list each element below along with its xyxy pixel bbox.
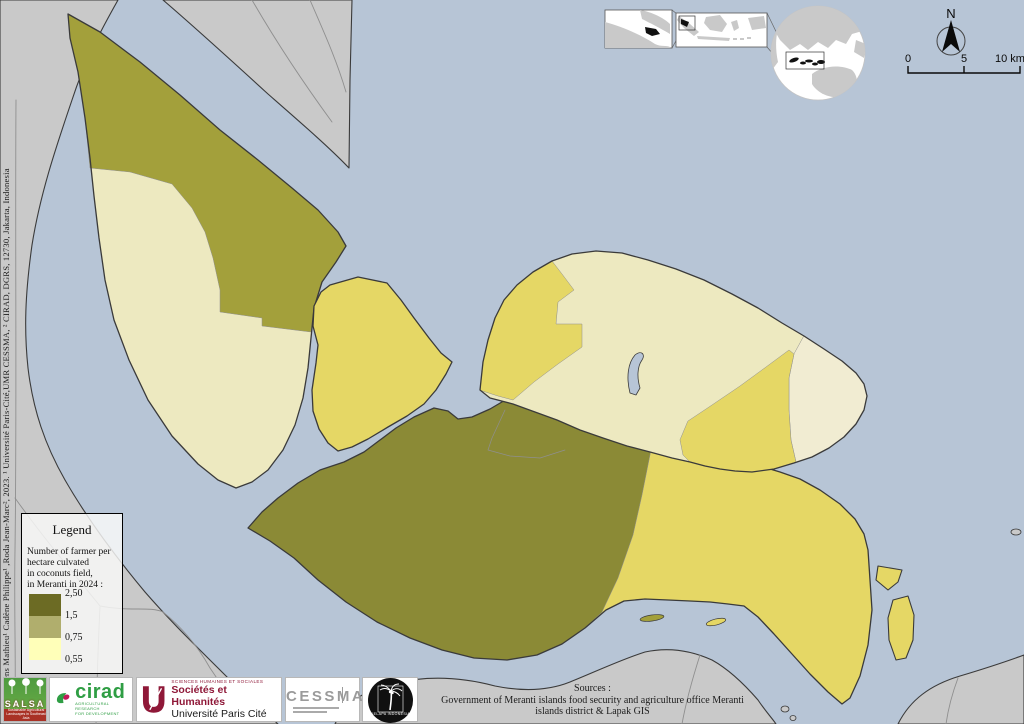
upc-monogram-icon — [141, 685, 166, 715]
kelapa-name: KELAPA INDONESIA — [368, 712, 413, 716]
upc-line2: Sociétés et Humanités — [171, 684, 281, 708]
cirad-seed-icon — [55, 691, 71, 708]
choropleth-map: N 0 5 10 km — [0, 0, 1024, 724]
legend-value-1: 2,50 — [65, 588, 83, 599]
inset-indonesia — [676, 13, 767, 47]
sources-body: Government of Meranti islands food secur… — [420, 695, 765, 718]
islet-small-2 — [790, 716, 796, 721]
cessma-logo: CESSMA — [285, 677, 360, 722]
scale-label-10km: 10 km — [995, 53, 1024, 65]
legend-swatch-high — [29, 594, 61, 616]
legend-swatch-mid — [29, 616, 61, 638]
legend-value-3: 0,75 — [65, 632, 83, 643]
cirad-logo: cirad AGRICULTURAL RESEARCH FOR DEVELOPM… — [49, 677, 133, 722]
salsa-logo: SALSA Sustainable Agricultural Landscape… — [3, 677, 47, 722]
map-page: N 0 5 10 km Legend Number of farmer per … — [0, 0, 1024, 724]
legend-title: Legend — [22, 522, 122, 538]
cirad-name: cirad — [75, 683, 132, 701]
citation-text: Bufkens Mathieu¹ Cadène Philippe¹ ,Roda … — [1, 142, 15, 698]
islet-small-1 — [781, 706, 789, 712]
islet-small-3 — [1011, 529, 1021, 535]
upc-line3: Université Paris Cité — [171, 708, 281, 720]
legend-description: Number of farmer per hectare culvated in… — [27, 547, 119, 591]
kelapa-circle: KELAPA INDONESIA — [368, 678, 413, 723]
cessma-bar — [342, 687, 343, 703]
sources-block: Sources : Government of Meranti islands … — [420, 683, 765, 718]
cessma-subtext-bar-1 — [293, 707, 339, 709]
legend-swatch-low — [29, 638, 61, 660]
cessma-subtext-bar-2 — [293, 711, 327, 713]
salsa-trees-icon — [4, 678, 47, 698]
inset-riau — [605, 10, 672, 48]
legend-value-4: 0,55 — [65, 654, 83, 665]
upc-logo: SCIENCES HUMAINES ET SOCIALES Sociétés e… — [136, 677, 282, 722]
cessma-name: CESSMA — [286, 688, 359, 705]
salsa-subtitle: Sustainable Agricultural Landscapes in S… — [5, 708, 47, 720]
sources-title: Sources : — [420, 683, 765, 695]
scale-label-5: 5 — [961, 53, 967, 65]
legend-box: Legend Number of farmer per hectare culv… — [21, 513, 123, 674]
legend-value-2: 1,5 — [65, 610, 78, 621]
kelapa-logo: KELAPA INDONESIA — [362, 677, 418, 722]
palm-tree-icon — [368, 678, 413, 723]
cirad-subtitle: AGRICULTURAL RESEARCH FOR DEVELOPMENT — [75, 701, 132, 716]
north-label: N — [946, 6, 955, 21]
scale-label-0: 0 — [905, 53, 911, 65]
